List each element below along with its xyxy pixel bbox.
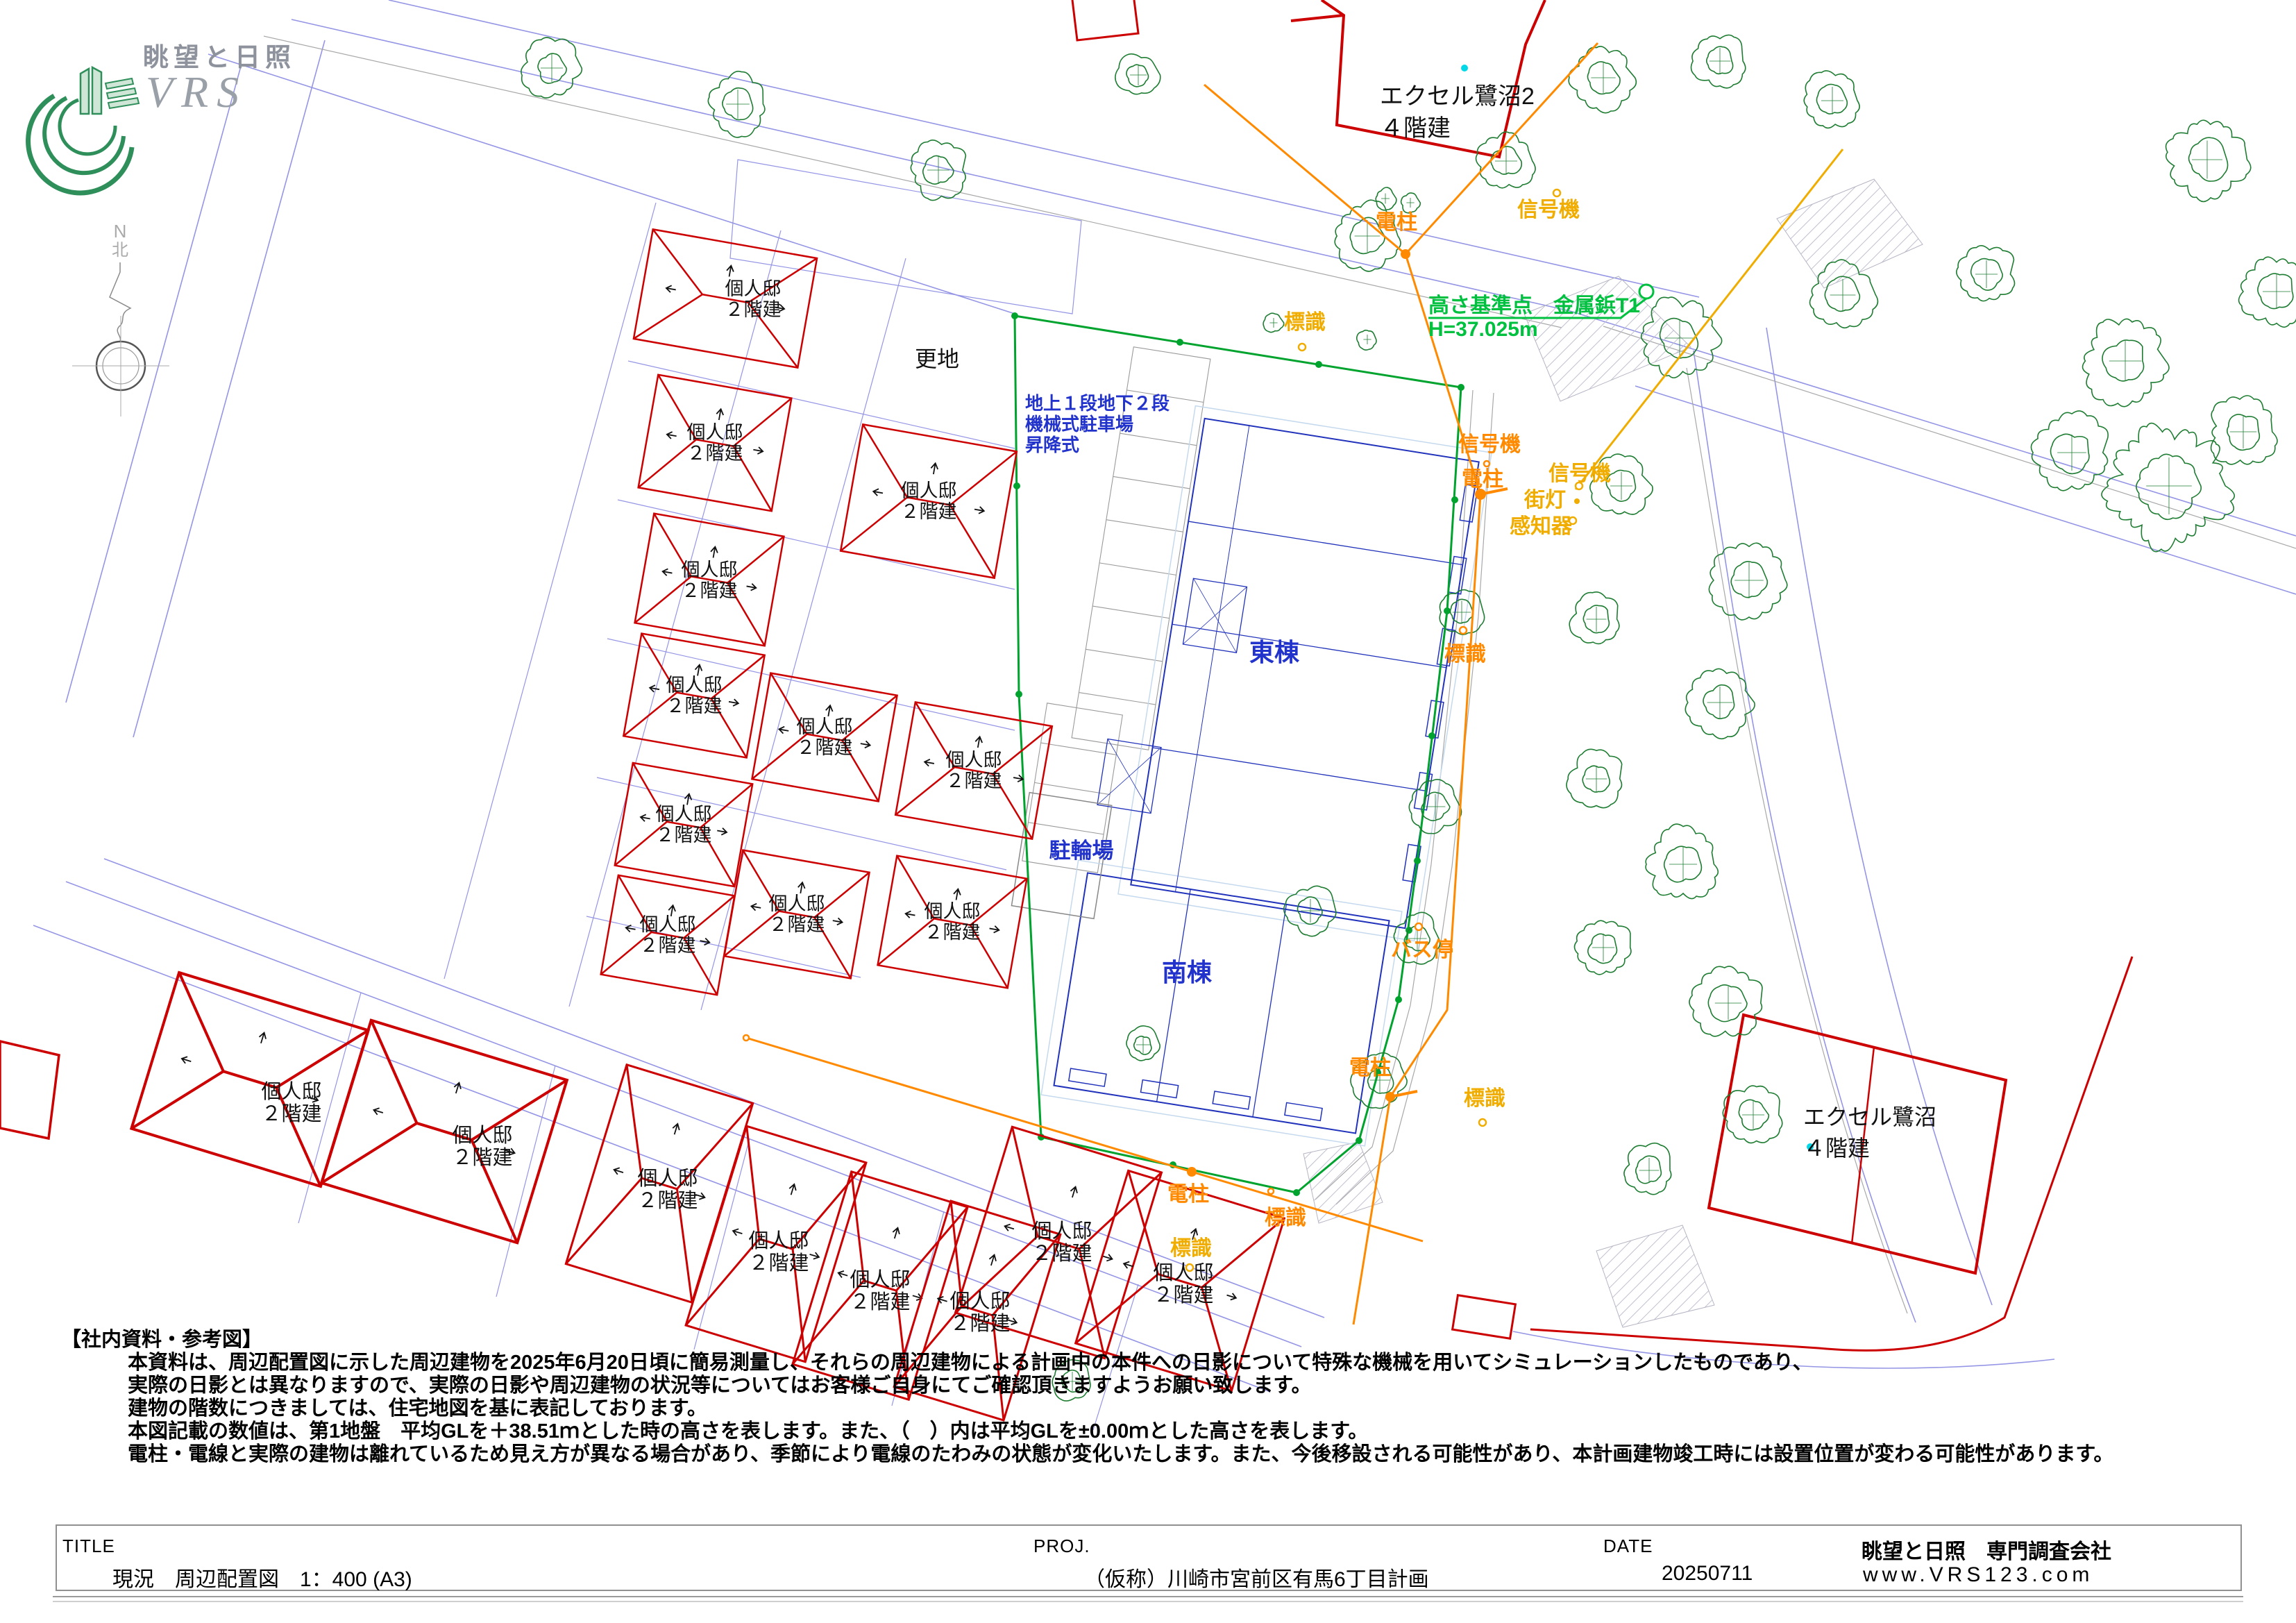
- date-value: 20250711: [1662, 1562, 1753, 1586]
- tree: [1723, 1086, 1782, 1143]
- notes-block: 【社内資料・参考図】 本資料は、周辺配置図に示した周辺建物を2025年6月20日…: [61, 1329, 2247, 1466]
- east-wing-outline: [1131, 419, 1481, 929]
- tree: [1569, 592, 1619, 644]
- road-network: [33, 0, 2296, 1430]
- house-label-line2: ２階建: [797, 737, 853, 758]
- notes-line: 本図記載の数値は、第1地盤 平均GLを＋38.51ｍとした時の高さを表します。ま…: [128, 1420, 2247, 1443]
- title-label: TITLE: [62, 1536, 115, 1557]
- tree-trunk-mark: [1742, 1101, 1764, 1129]
- house-label-line2: ２階建: [682, 580, 738, 601]
- house-label: 個人邸: [925, 901, 981, 922]
- tree-trunk-mark: [2230, 415, 2256, 448]
- utility-marker: [1299, 344, 1306, 351]
- tree-trunk-mark: [1639, 1158, 1660, 1183]
- tree-inner: [2258, 274, 2293, 309]
- sign-label: 標識: [1170, 1237, 1212, 1260]
- overhead-wires: [746, 43, 1843, 1325]
- tree-canopy: [2211, 396, 2277, 464]
- tree: [2083, 319, 2170, 406]
- tree-canopy: [2102, 423, 2234, 552]
- utility-pole-label: 電柱: [1462, 468, 1503, 491]
- tree: [521, 37, 582, 98]
- tree: [1957, 246, 2015, 301]
- tree-canopy: [1691, 35, 1745, 87]
- tree-trunk-mark: [1669, 847, 1697, 882]
- company-name: 眺望と日照 専門調査会社: [1862, 1534, 2111, 1565]
- title-value: 現況 周辺配置図 1：400 (A3): [112, 1562, 412, 1592]
- proj-value: （仮称）川崎市宮前区有馬6丁目計画: [1084, 1562, 1429, 1592]
- house-roof-lines: [321, 1020, 567, 1243]
- title-block: TITLE 現況 周辺配置図 1：400 (A3) PROJ. （仮称）川崎市宮…: [56, 1524, 2242, 1591]
- utility-marker: [1574, 498, 1580, 504]
- tree-canopy: [2166, 120, 2251, 201]
- notes-header: 【社内資料・参考図】: [61, 1329, 2247, 1352]
- tree-canopy: [1624, 1143, 1671, 1195]
- tree-trunk-mark: [927, 156, 949, 184]
- house-label-line2: ２階建: [769, 914, 825, 935]
- benchmark-label: 高さ基準点 金属鋲T1: [1428, 294, 1640, 317]
- tree-inner: [2136, 454, 2201, 519]
- tree-inner: [1588, 934, 1617, 963]
- company-website: www.VRS123.com: [1863, 1563, 2093, 1587]
- tree: [1569, 47, 1636, 113]
- house-label: 個人邸: [748, 1229, 809, 1252]
- notes-line: 本資料は、周辺配置図に示した周辺建物を2025年6月20日頃に簡易測量し、それら…: [128, 1352, 2247, 1374]
- house-label-line2: ２階建: [725, 299, 782, 320]
- tree-trunk-mark: [2109, 341, 2141, 381]
- tree-trunk-mark: [2146, 457, 2192, 514]
- tree: [708, 72, 765, 137]
- house-label: 個人邸: [946, 750, 1002, 771]
- house-label: 個人邸: [687, 422, 743, 443]
- tree-inner: [1825, 276, 1859, 311]
- utility-marker: [1415, 923, 1422, 930]
- tree-canopy: [2031, 411, 2108, 491]
- utility-marker: [743, 1035, 749, 1041]
- tree-inner: [1816, 84, 1847, 114]
- tree-canopy: [1569, 47, 1636, 113]
- tree-inner: [1126, 65, 1149, 87]
- house-label: 個人邸: [452, 1124, 512, 1147]
- north-arrow: [72, 262, 169, 417]
- house-label: 個人邸: [901, 480, 957, 501]
- sign-label: 標識: [1284, 311, 1326, 334]
- tree: [1689, 966, 1762, 1036]
- north-kita: 北: [112, 241, 128, 260]
- tree: [1804, 71, 1859, 128]
- sign-label: 標識: [1444, 643, 1486, 666]
- street-lamp-label: 街灯: [1523, 489, 1566, 512]
- house-label: 個人邸: [725, 278, 782, 299]
- sarachi-label: 更地: [915, 346, 959, 371]
- house-label: 個人邸: [1153, 1261, 1213, 1284]
- utility-marker: [1484, 461, 1489, 466]
- north-letter: N: [114, 221, 127, 242]
- house-label-line2: ２階建: [656, 825, 712, 846]
- tree-canopy: [1804, 71, 1859, 128]
- bldg-excel1: エクセル鷺沼: [1803, 1104, 1936, 1129]
- proj-label: PROJ.: [1033, 1536, 1090, 1557]
- sensor-label: 感知器: [1510, 515, 1573, 538]
- site-plan-page: N北エクセル鷺沼2４階建エクセル鷺沼４階建更地個人邸２階建個人邸２階建個人邸２階…: [0, 0, 2296, 1623]
- utility-marker: [1553, 190, 1560, 196]
- tree-canopy: [1689, 966, 1762, 1036]
- parking-note-line2: 機械式駐車場: [1025, 414, 1133, 435]
- tree-canopy: [2083, 319, 2170, 406]
- tree-inner: [2050, 434, 2088, 473]
- tree-canopy: [1115, 54, 1160, 94]
- south-wing-label: 南棟: [1162, 958, 1213, 986]
- signal-label: 信号機: [1517, 199, 1580, 221]
- sign-label: 標識: [1464, 1087, 1505, 1110]
- tree-inner: [1703, 685, 1734, 719]
- notes-line: 電柱・電線と実際の建物は離れているため見え方が異なる場合があり、季節により電線の…: [128, 1443, 2247, 1466]
- tree: [2211, 396, 2277, 464]
- house-label-line2: ２階建: [452, 1146, 512, 1169]
- tree: [2031, 411, 2108, 491]
- house-label-line2: ２階建: [901, 501, 957, 522]
- tree-trunk-mark: [1363, 335, 1371, 344]
- tree-canopy: [1476, 132, 1536, 188]
- tree-trunk-mark: [1821, 87, 1843, 115]
- tree-trunk-mark: [2263, 274, 2290, 309]
- tree-trunk-mark: [1715, 986, 1741, 1020]
- signal-label: 信号機: [1548, 462, 1611, 485]
- tree: [2102, 423, 2234, 552]
- tree-canopy: [1646, 824, 1718, 898]
- bldg-excel2-line2: ４階建: [1380, 115, 1451, 142]
- benchmark-label-line2: H=37.025m: [1428, 318, 1538, 341]
- tree: [1376, 187, 1396, 210]
- house-label-line2: ２階建: [748, 1252, 809, 1275]
- tree-trunk-mark: [1381, 194, 1390, 204]
- tree-canopy: [1569, 592, 1619, 644]
- house-roof-lines: [131, 973, 368, 1186]
- utility-pole-label: 電柱: [1167, 1183, 1209, 1206]
- house-label-line2: ２階建: [925, 922, 981, 943]
- tree: [1263, 313, 1284, 332]
- map-labels-layer: N北エクセル鷺沼2４階建エクセル鷺沼４階建更地個人邸２階建個人邸２階建個人邸２階…: [112, 83, 1936, 1335]
- house-label-line2: ２階建: [946, 771, 1002, 791]
- tree: [1567, 749, 1622, 807]
- tree-trunk-mark: [1710, 48, 1730, 74]
- utility-marker: [1187, 1167, 1197, 1177]
- house-label: 個人邸: [1031, 1220, 1092, 1243]
- parking-note: 地上１段地下２段: [1025, 393, 1170, 414]
- tree-trunk-mark: [1591, 62, 1615, 93]
- house-label-line2: ２階建: [640, 935, 696, 956]
- tree-trunk-mark: [2057, 435, 2086, 471]
- house-label: 個人邸: [769, 893, 825, 914]
- tree-trunk-mark: [1734, 562, 1764, 598]
- tree: [1476, 132, 1536, 188]
- vrs-logo-mark: [28, 67, 139, 193]
- house-label: 個人邸: [682, 560, 738, 580]
- south-wing-outline: [1054, 873, 1389, 1133]
- tree-canopy: [1357, 330, 1376, 350]
- tree-canopy: [1567, 749, 1622, 807]
- tree-trunk-mark: [1975, 260, 1998, 288]
- house-label-line2: ２階建: [687, 443, 743, 464]
- house-label: 個人邸: [261, 1080, 321, 1103]
- tree: [1115, 54, 1160, 94]
- signal-label: 信号機: [1458, 433, 1521, 456]
- tree-trunk-mark: [1587, 607, 1607, 632]
- tree-trunk-mark: [1269, 318, 1277, 328]
- tree-trunk-mark: [1406, 198, 1414, 208]
- house-label-line2: ２階建: [261, 1102, 321, 1125]
- tree-trunk-mark: [1586, 766, 1607, 792]
- tree-trunk-mark: [1610, 472, 1632, 500]
- tree: [1574, 920, 1630, 975]
- title-block-divider: [53, 1596, 2243, 1602]
- house-label: 個人邸: [666, 675, 723, 696]
- utility-markers-layer: [743, 65, 1814, 1271]
- tree-inner: [2102, 340, 2144, 381]
- date-label: DATE: [1603, 1536, 1653, 1557]
- tree: [2166, 120, 2251, 201]
- house-label: 個人邸: [949, 1290, 1010, 1313]
- tree: [1357, 330, 1376, 350]
- tree: [1691, 35, 1745, 87]
- brand-vrs: VRS: [146, 67, 247, 118]
- utility-pole-label: 電柱: [1349, 1057, 1391, 1079]
- utility-marker: [1479, 1119, 1486, 1126]
- utility-pole-label: 電柱: [1376, 211, 1417, 234]
- tree-canopy: [1723, 1086, 1782, 1143]
- tree-trunk-mark: [1301, 899, 1319, 923]
- tree-trunk-mark: [1130, 65, 1147, 85]
- bicycle-parking-label: 駐輪場: [1049, 839, 1114, 863]
- sign-label: 標識: [1265, 1206, 1306, 1229]
- bldg-excel1-line2: ４階建: [1803, 1136, 1870, 1161]
- utility-marker: [1460, 627, 1467, 634]
- house-label: 個人邸: [797, 716, 853, 737]
- tree-canopy: [1376, 187, 1396, 210]
- house-label-line2: ２階建: [1031, 1242, 1092, 1265]
- house-label-line2: ２階建: [666, 696, 723, 716]
- house-label: 個人邸: [637, 1167, 698, 1190]
- house: [131, 973, 368, 1186]
- tree: [1126, 1026, 1160, 1061]
- utility-marker: [1385, 1092, 1395, 1102]
- tree: [1401, 193, 1421, 213]
- planned-buildings: [1011, 406, 1492, 1146]
- tree-canopy: [1709, 543, 1787, 620]
- tree-canopy: [1957, 246, 2015, 301]
- notes-line: 建物の階数につきましては、住宅地図を基に表記しております。: [128, 1397, 2247, 1420]
- tree: [1646, 824, 1718, 898]
- house-label: 個人邸: [850, 1268, 910, 1291]
- house: [321, 1020, 567, 1243]
- tree: [2239, 257, 2296, 327]
- bus-stop-label: バス停: [1391, 939, 1453, 961]
- house-label-line2: ２階建: [850, 1290, 910, 1313]
- trees-layer: [521, 35, 2296, 1401]
- utility-marker: [1401, 249, 1410, 259]
- benchmark-point: [1639, 285, 1653, 298]
- notes-line: 実際の日影とは異なりますので、実際の日影や周辺建物の状況等についてはお客様ご自身…: [128, 1374, 2247, 1397]
- tree-canopy: [521, 37, 582, 98]
- tree-inner: [1636, 1156, 1662, 1184]
- east-wing-label: 東棟: [1249, 638, 1300, 666]
- tree-canopy: [2239, 257, 2296, 327]
- tree: [911, 140, 965, 201]
- tree-inner: [1134, 1036, 1151, 1054]
- house-label: 個人邸: [656, 804, 712, 825]
- tree: [1624, 1143, 1671, 1195]
- house-label: 個人邸: [640, 914, 696, 935]
- tree: [1709, 543, 1787, 620]
- bldg-excel2: エクセル鷺沼2: [1380, 83, 1535, 110]
- utility-marker: [1461, 65, 1468, 72]
- house-label-line2: ２階建: [1153, 1284, 1213, 1306]
- house-label-line2: ２階建: [637, 1189, 698, 1212]
- parking-note-line2: 昇降式: [1025, 435, 1079, 455]
- utility-marker: [1268, 1188, 1274, 1194]
- tree-trunk-mark: [1592, 934, 1614, 961]
